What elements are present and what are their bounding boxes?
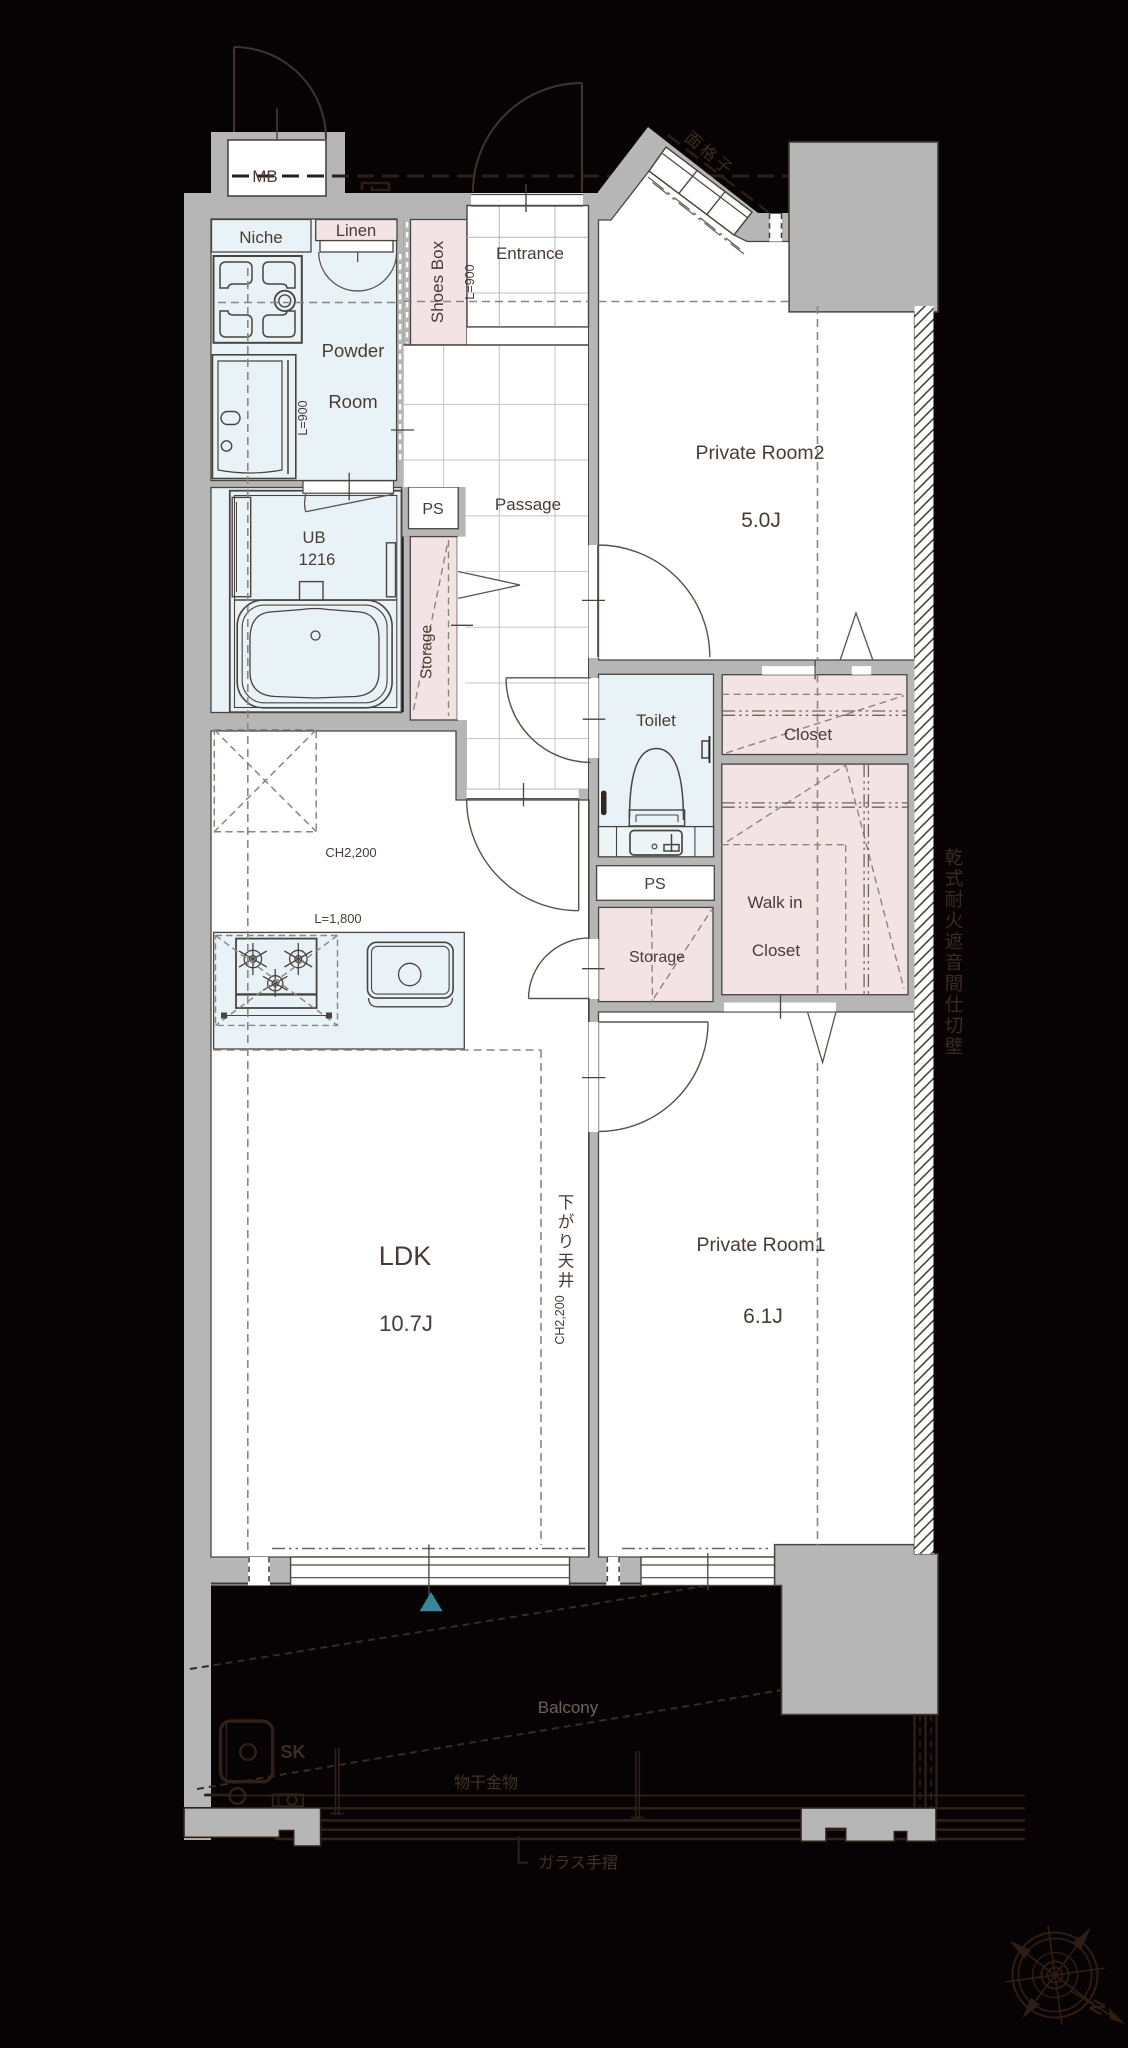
- svg-text:仕: 仕: [945, 994, 964, 1015]
- svg-text:LDK: LDK: [379, 1241, 432, 1271]
- svg-text:Private Room2: Private Room2: [696, 442, 825, 464]
- svg-text:6.1J: 6.1J: [743, 1305, 783, 1328]
- svg-text:物干金物: 物干金物: [454, 1774, 518, 1792]
- svg-text:Passage: Passage: [495, 495, 561, 514]
- svg-text:Toilet: Toilet: [636, 711, 676, 730]
- svg-text:Closet: Closet: [752, 941, 800, 960]
- svg-text:PS: PS: [422, 501, 443, 518]
- svg-text:MB: MB: [252, 167, 278, 186]
- svg-text:Private Room1: Private Room1: [697, 1234, 826, 1256]
- svg-text:Walk in: Walk in: [747, 893, 802, 912]
- svg-text:Room: Room: [328, 391, 377, 412]
- svg-text:Storage: Storage: [629, 949, 685, 966]
- svg-text:耐: 耐: [945, 889, 964, 910]
- svg-text:10.7J: 10.7J: [379, 1311, 433, 1336]
- svg-text:PS: PS: [644, 876, 665, 893]
- svg-text:Closet: Closet: [784, 725, 832, 744]
- svg-text:井: 井: [558, 1271, 575, 1290]
- svg-text:1216: 1216: [299, 551, 336, 569]
- svg-text:音: 音: [945, 952, 964, 973]
- svg-text:Storage: Storage: [419, 625, 436, 679]
- svg-text:乾: 乾: [945, 847, 964, 868]
- svg-text:Niche: Niche: [239, 228, 282, 247]
- svg-text:CH2,200: CH2,200: [325, 845, 376, 860]
- svg-text:遮: 遮: [945, 931, 964, 952]
- svg-text:Linen: Linen: [336, 222, 376, 240]
- svg-text:り: り: [558, 1233, 575, 1251]
- svg-text:天: 天: [558, 1253, 575, 1271]
- svg-text:Entrance: Entrance: [496, 244, 564, 263]
- svg-text:CH2,200: CH2,200: [553, 1295, 567, 1344]
- svg-text:下: 下: [558, 1194, 575, 1212]
- svg-text:式: 式: [945, 868, 964, 889]
- svg-text:火: 火: [945, 910, 964, 931]
- svg-text:壁: 壁: [945, 1036, 964, 1057]
- svg-text:ガラス手摺: ガラス手摺: [538, 1854, 618, 1872]
- svg-text:Shoes Box: Shoes Box: [428, 240, 447, 323]
- svg-text:L=900: L=900: [463, 264, 477, 299]
- svg-text:が: が: [558, 1213, 575, 1232]
- svg-text:L=1,800: L=1,800: [314, 911, 361, 926]
- svg-text:Powder: Powder: [322, 340, 385, 361]
- svg-text:間: 間: [945, 973, 964, 994]
- svg-text:UB: UB: [303, 529, 326, 547]
- svg-text:5.0J: 5.0J: [741, 509, 781, 532]
- svg-text:SK: SK: [280, 1742, 305, 1762]
- svg-text:Balcony: Balcony: [538, 1698, 599, 1717]
- svg-text:L=900: L=900: [296, 400, 310, 435]
- svg-text:切: 切: [945, 1015, 964, 1036]
